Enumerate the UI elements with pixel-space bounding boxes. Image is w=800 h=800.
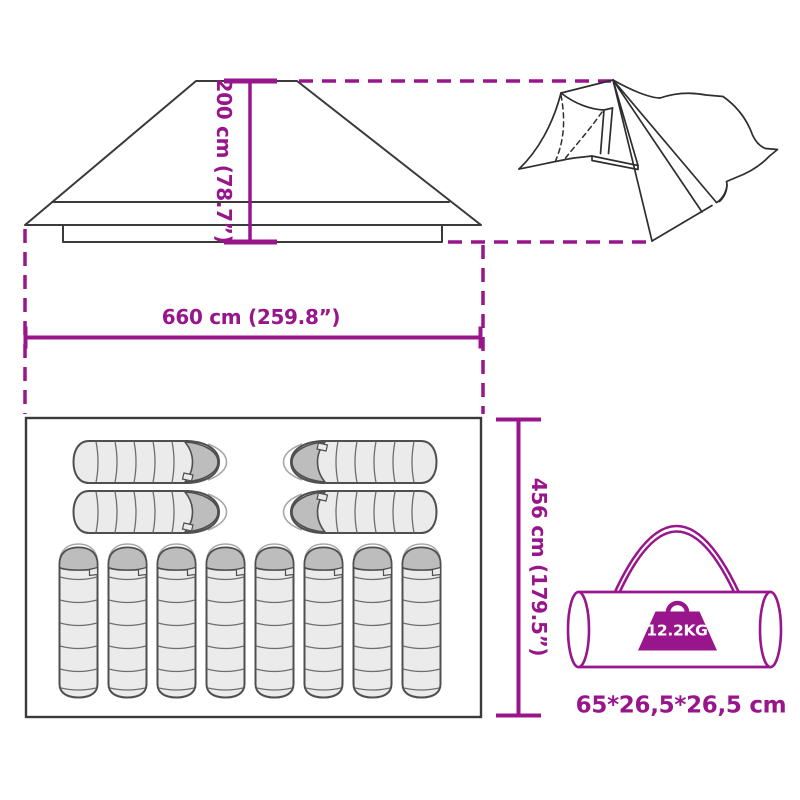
sleeping-bag	[207, 544, 245, 698]
sleeping-bag	[158, 544, 196, 698]
sleeping-bag	[256, 544, 294, 698]
sleeping-bag	[109, 544, 147, 698]
carry-bag	[568, 526, 781, 667]
sleeping-bag	[284, 491, 437, 533]
sleeping-bag	[74, 441, 227, 483]
sleeping-bag	[74, 491, 227, 533]
sleeping-bag	[284, 441, 437, 483]
diagram-artwork	[0, 0, 800, 800]
sleeping-bag	[60, 544, 98, 698]
tent-3d-sketch	[519, 80, 778, 241]
projection-dashed-lines	[25, 81, 646, 414]
floor-plan	[26, 418, 481, 717]
sleeping-bag	[403, 544, 441, 698]
depth-dimension-line	[496, 420, 541, 716]
sleeping-bag	[305, 544, 343, 698]
tent-side-profile	[25, 81, 481, 242]
sleeping-bag	[354, 544, 392, 698]
product-dimension-diagram: 200 cm (78.7”) 660 cm (259.8”) 456 cm (1…	[0, 0, 800, 800]
width-dimension-line	[26, 327, 481, 349]
height-dimension-line	[224, 81, 277, 242]
